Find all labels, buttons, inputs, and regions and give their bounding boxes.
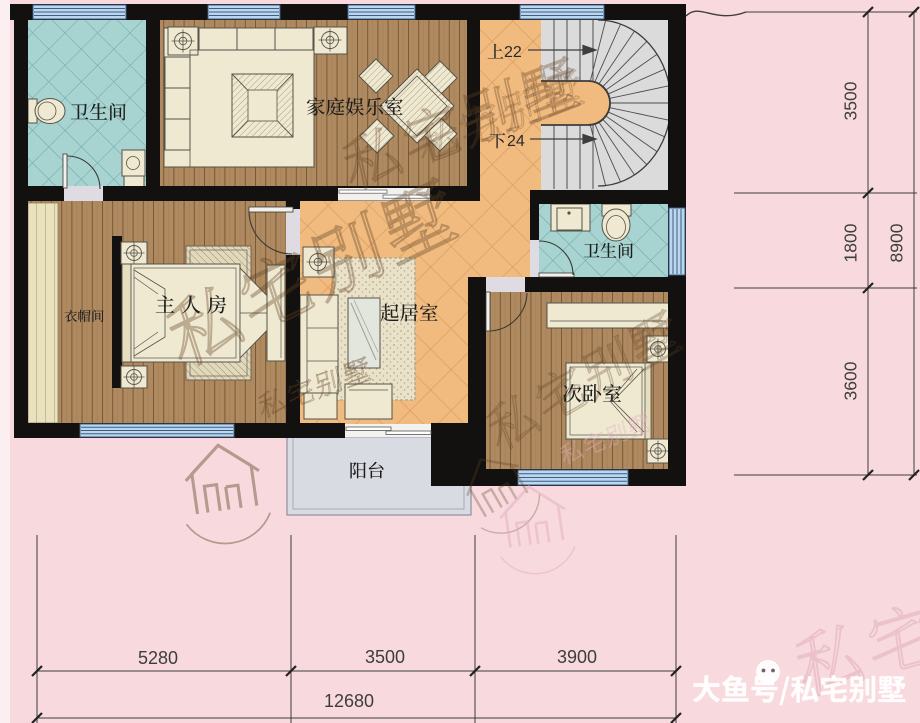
svg-text:3500: 3500 (365, 647, 405, 667)
svg-text:1800: 1800 (841, 223, 861, 262)
svg-text:3500: 3500 (841, 81, 861, 120)
svg-text:8900: 8900 (887, 223, 907, 262)
svg-text:3600: 3600 (841, 361, 861, 400)
svg-text:3900: 3900 (557, 647, 597, 667)
svg-text:22: 22 (504, 44, 522, 61)
svg-text:5280: 5280 (138, 648, 178, 668)
svg-text:24: 24 (507, 133, 525, 150)
svg-text:12680: 12680 (324, 691, 374, 711)
